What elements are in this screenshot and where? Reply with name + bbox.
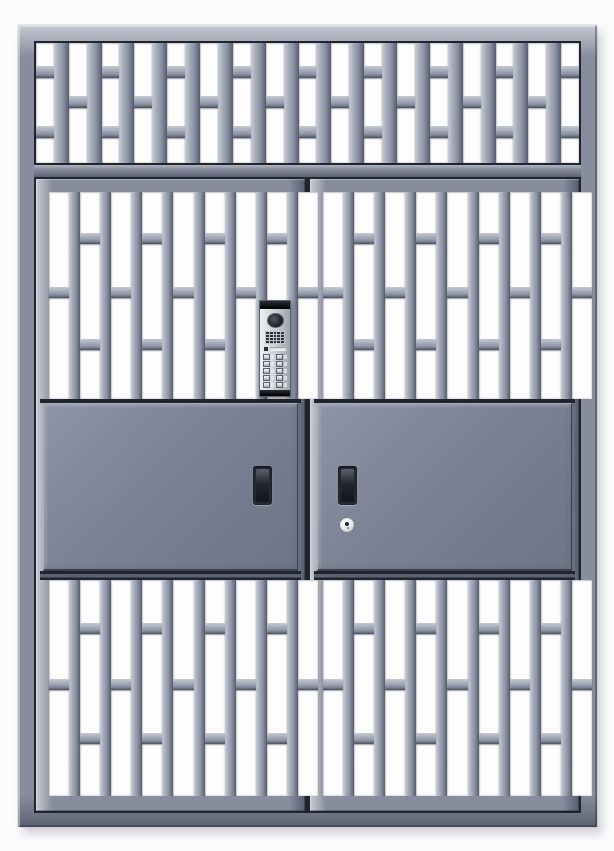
grille-bar — [162, 580, 173, 796]
grille-bar — [468, 580, 479, 796]
grille-bar — [185, 43, 200, 163]
speaker-hole — [281, 335, 284, 337]
grille-bar — [405, 580, 416, 796]
grille-crossbar — [80, 623, 100, 634]
grille-slot — [134, 43, 152, 163]
grille-crossbar — [397, 96, 415, 108]
grille-crossbar — [233, 66, 251, 78]
grille-bar — [530, 192, 541, 399]
grille-bar — [481, 43, 496, 163]
speaker-hole — [266, 341, 269, 343]
call-button-cell — [276, 368, 287, 374]
grille-bar — [194, 580, 205, 796]
grille-bar — [316, 43, 331, 163]
call-button[interactable] — [276, 375, 283, 381]
right-handle-recess — [341, 469, 354, 502]
grille-slot — [572, 580, 592, 796]
grille-bar — [87, 43, 102, 163]
grille-crossbar — [236, 679, 256, 690]
grille-bar — [119, 43, 134, 163]
grille-slot — [354, 580, 374, 796]
grille-slot — [385, 580, 405, 796]
grille-crossbar — [354, 339, 374, 350]
grille-crossbar — [102, 66, 120, 78]
grille-crossbar — [323, 287, 343, 298]
grille-bar — [225, 192, 236, 399]
call-button-cell — [263, 382, 274, 388]
intercom-camera-lens-icon — [267, 313, 284, 328]
grille-slot — [236, 580, 256, 796]
grille-slot — [236, 192, 256, 399]
speaker-hole — [277, 341, 280, 343]
call-button[interactable] — [263, 361, 270, 367]
grille-bar — [530, 580, 541, 796]
grille-crossbar — [463, 96, 481, 108]
speaker-hole — [274, 341, 277, 343]
grille-slot — [298, 192, 318, 399]
grille-crossbar — [479, 339, 499, 350]
right-door-solid-panel — [317, 403, 572, 571]
grille-crossbar — [134, 96, 152, 108]
grille-slot — [479, 192, 499, 399]
transom-divider-rail — [34, 165, 581, 177]
grille-bar — [284, 43, 299, 163]
call-button-cell — [276, 361, 287, 367]
speaker-hole — [277, 338, 280, 340]
grille-crossbar — [479, 233, 499, 244]
right-door-handle[interactable] — [338, 466, 357, 505]
grille-slot — [354, 192, 374, 399]
grille-bar — [100, 192, 111, 399]
right-door-lower-grille — [323, 580, 592, 796]
speaker-hole — [277, 335, 280, 337]
grille-bar — [374, 580, 385, 796]
door-product-photo — [0, 0, 614, 851]
right-door-bottom-rail — [310, 796, 579, 811]
grille-bar — [468, 192, 479, 399]
grille-crossbar — [205, 733, 225, 744]
grille-bar — [415, 43, 430, 163]
speaker-hole — [274, 338, 277, 340]
grille-slot — [510, 192, 530, 399]
grille-crossbar — [572, 287, 592, 298]
speaker-hole — [266, 338, 269, 340]
grille-slot — [416, 192, 436, 399]
grille-slot — [205, 192, 225, 399]
grille-slot — [385, 192, 405, 399]
grille-crossbar — [102, 126, 120, 138]
grille-crossbar — [267, 733, 287, 744]
grille-crossbar — [479, 733, 499, 744]
call-button-cell — [263, 361, 274, 367]
grille-bar — [499, 580, 510, 796]
left-handle-recess — [256, 469, 269, 502]
grille-crossbar — [541, 233, 561, 244]
right-door-top-rail — [310, 179, 579, 192]
grille-slot — [173, 192, 193, 399]
call-button-cell — [276, 375, 287, 381]
grille-crossbar — [36, 126, 54, 138]
grille-crossbar — [111, 287, 131, 298]
right-door-leaf — [310, 179, 579, 811]
grille-slot — [430, 43, 448, 163]
grille-slot — [102, 43, 120, 163]
grille-crossbar — [447, 679, 467, 690]
grille-crossbar — [541, 339, 561, 350]
grille-crossbar — [200, 96, 218, 108]
grille-crossbar — [430, 126, 448, 138]
grille-crossbar — [142, 339, 162, 350]
grille-slot — [323, 192, 343, 399]
grille-bar — [100, 580, 111, 796]
grille-crossbar — [541, 733, 561, 744]
call-button-nameplate — [284, 355, 287, 359]
grille-crossbar — [416, 233, 436, 244]
grille-crossbar — [572, 679, 592, 690]
grille-crossbar — [49, 287, 69, 298]
grille-crossbar — [49, 679, 69, 690]
grille-crossbar — [447, 287, 467, 298]
grille-crossbar — [528, 96, 546, 108]
grille-crossbar — [142, 733, 162, 744]
call-button-cell — [263, 368, 274, 374]
grille-bar — [448, 43, 463, 163]
call-button-nameplate — [284, 376, 287, 380]
grille-slot — [205, 580, 225, 796]
grille-slot — [299, 43, 317, 163]
grille-slot — [496, 43, 514, 163]
grille-crossbar — [69, 96, 87, 108]
grille-crossbar — [167, 126, 185, 138]
call-button[interactable] — [263, 354, 270, 360]
grille-bar — [499, 192, 510, 399]
call-button-nameplate — [271, 383, 274, 387]
right-door-panel-bottom-seam — [314, 571, 575, 580]
call-button-nameplate — [271, 355, 274, 359]
grille-crossbar — [364, 66, 382, 78]
call-button[interactable] — [276, 382, 283, 388]
speaker-hole — [274, 332, 277, 334]
grille-slot — [528, 43, 546, 163]
call-button-cell — [263, 375, 274, 381]
speaker-hole — [270, 332, 273, 334]
intercom-top-cap — [260, 301, 290, 309]
speaker-hole — [270, 335, 273, 337]
grille-bar — [225, 580, 236, 796]
grille-crossbar — [80, 233, 100, 244]
grille-crossbar — [173, 287, 193, 298]
left-door-top-rail — [36, 179, 305, 192]
grille-crossbar — [111, 679, 131, 690]
grille-crossbar — [267, 623, 287, 634]
grille-crossbar — [267, 233, 287, 244]
grille-slot — [447, 192, 467, 399]
intercom-camera-plate — [260, 309, 290, 331]
grille-crossbar — [364, 126, 382, 138]
grille-slot — [49, 580, 69, 796]
grille-slot — [173, 580, 193, 796]
grille-slot — [80, 580, 100, 796]
grille-crossbar — [416, 733, 436, 744]
grille-bar — [162, 192, 173, 399]
gate-interior — [34, 41, 581, 813]
grille-crossbar — [173, 679, 193, 690]
grille-crossbar — [142, 623, 162, 634]
intercom-speaker-grille — [265, 331, 285, 344]
speaker-hole — [281, 338, 284, 340]
grille-crossbar — [561, 66, 579, 78]
grille-bar — [54, 43, 69, 163]
grille-crossbar — [142, 233, 162, 244]
grille-crossbar — [167, 66, 185, 78]
grille-slot — [142, 192, 162, 399]
call-button[interactable] — [263, 368, 270, 374]
grille-crossbar — [331, 96, 349, 108]
grille-bar — [349, 43, 364, 163]
call-button[interactable] — [276, 354, 283, 360]
grille-slot — [200, 43, 218, 163]
grille-crossbar — [479, 623, 499, 634]
call-button[interactable] — [263, 375, 270, 381]
grille-bar — [374, 192, 385, 399]
call-button[interactable] — [276, 368, 283, 374]
grille-bar — [218, 43, 233, 163]
right-door-upper-grille — [323, 192, 592, 399]
grille-bar — [69, 580, 80, 796]
intercom-bottom-cap — [260, 390, 290, 396]
grille-slot — [111, 580, 131, 796]
grille-slot — [267, 580, 287, 796]
call-button-nameplate — [271, 362, 274, 366]
grille-slot — [447, 580, 467, 796]
grille-bar — [546, 43, 561, 163]
grille-slot — [364, 43, 382, 163]
grille-crossbar — [36, 66, 54, 78]
grille-slot — [331, 43, 349, 163]
grille-bar — [343, 580, 354, 796]
left-door-bottom-rail — [36, 796, 305, 811]
grille-crossbar — [354, 733, 374, 744]
grille-bar — [256, 580, 267, 796]
grille-slot — [541, 192, 561, 399]
keyhole-cylinder[interactable] — [339, 517, 355, 533]
left-door-handle[interactable] — [253, 466, 272, 505]
grille-crossbar — [416, 339, 436, 350]
grille-crossbar — [496, 126, 514, 138]
left-door-lower-grille — [49, 580, 318, 796]
grille-bar — [152, 43, 167, 163]
grille-bar — [287, 580, 298, 796]
speaker-hole — [270, 341, 273, 343]
grille-slot — [397, 43, 415, 163]
grille-bar — [382, 43, 397, 163]
grille-crossbar — [385, 287, 405, 298]
call-button-cell — [276, 354, 287, 360]
grille-slot — [572, 192, 592, 399]
grille-crossbar — [299, 126, 317, 138]
speaker-hole — [281, 341, 284, 343]
grille-bar — [343, 192, 354, 399]
grille-bar — [251, 43, 266, 163]
transom-grille — [36, 43, 579, 163]
call-button-nameplate — [284, 383, 287, 387]
grille-crossbar — [299, 66, 317, 78]
grille-slot — [111, 192, 131, 399]
grille-slot — [541, 580, 561, 796]
intercom-indicator-icon — [264, 347, 268, 351]
call-button-nameplate — [284, 369, 287, 373]
left-door-panel-bottom-seam — [40, 571, 301, 580]
left-door-leaf — [36, 179, 305, 811]
grille-crossbar — [385, 679, 405, 690]
grille-slot — [561, 43, 579, 163]
grille-slot — [298, 580, 318, 796]
grille-crossbar — [354, 233, 374, 244]
intercom-call-buttons — [263, 354, 287, 388]
grille-crossbar — [205, 623, 225, 634]
grille-crossbar — [266, 96, 284, 108]
grille-crossbar — [298, 287, 318, 298]
grille-bar — [436, 580, 447, 796]
speaker-hole — [266, 335, 269, 337]
grille-slot — [36, 43, 54, 163]
grille-crossbar — [80, 339, 100, 350]
call-button-cell — [276, 382, 287, 388]
grille-bar — [131, 580, 142, 796]
security-gate-frame — [18, 25, 597, 827]
grille-bar — [69, 192, 80, 399]
grille-crossbar — [561, 126, 579, 138]
grille-crossbar — [205, 233, 225, 244]
grille-slot — [49, 192, 69, 399]
speaker-hole — [266, 332, 269, 334]
grille-slot — [233, 43, 251, 163]
grille-slot — [416, 580, 436, 796]
left-door-solid-panel — [43, 403, 298, 571]
call-button-nameplate — [271, 369, 274, 373]
grille-crossbar — [323, 679, 343, 690]
grille-bar — [131, 192, 142, 399]
grille-bar — [561, 580, 572, 796]
call-button[interactable] — [263, 382, 270, 388]
grille-crossbar — [416, 623, 436, 634]
speaker-hole — [281, 332, 284, 334]
call-button[interactable] — [276, 361, 283, 367]
call-button-nameplate — [284, 362, 287, 366]
grille-crossbar — [298, 679, 318, 690]
grille-crossbar — [205, 339, 225, 350]
grille-slot — [69, 43, 87, 163]
speaker-hole — [274, 335, 277, 337]
grille-crossbar — [430, 66, 448, 78]
grille-slot — [463, 43, 481, 163]
grille-crossbar — [236, 287, 256, 298]
speaker-hole — [277, 332, 280, 334]
double-door-assembly — [34, 177, 581, 813]
grille-slot — [479, 580, 499, 796]
grille-crossbar — [496, 66, 514, 78]
speaker-hole — [270, 338, 273, 340]
grille-crossbar — [354, 623, 374, 634]
grille-crossbar — [510, 679, 530, 690]
grille-bar — [513, 43, 528, 163]
grille-bar — [405, 192, 416, 399]
grille-crossbar — [80, 733, 100, 744]
call-button-nameplate — [271, 376, 274, 380]
grille-slot — [167, 43, 185, 163]
grille-slot — [323, 580, 343, 796]
call-button-cell — [263, 354, 274, 360]
grille-bar — [561, 192, 572, 399]
grille-slot — [80, 192, 100, 399]
grille-bar — [436, 192, 447, 399]
transom-section — [34, 41, 581, 165]
grille-crossbar — [510, 287, 530, 298]
intercom-nameplate-slot — [270, 347, 286, 351]
grille-crossbar — [233, 126, 251, 138]
grille-crossbar — [541, 623, 561, 634]
grille-slot — [142, 580, 162, 796]
intercom-indicator-row — [264, 345, 286, 352]
grille-slot — [510, 580, 530, 796]
grille-slot — [266, 43, 284, 163]
intercom-unit — [259, 300, 291, 397]
grille-bar — [194, 192, 205, 399]
